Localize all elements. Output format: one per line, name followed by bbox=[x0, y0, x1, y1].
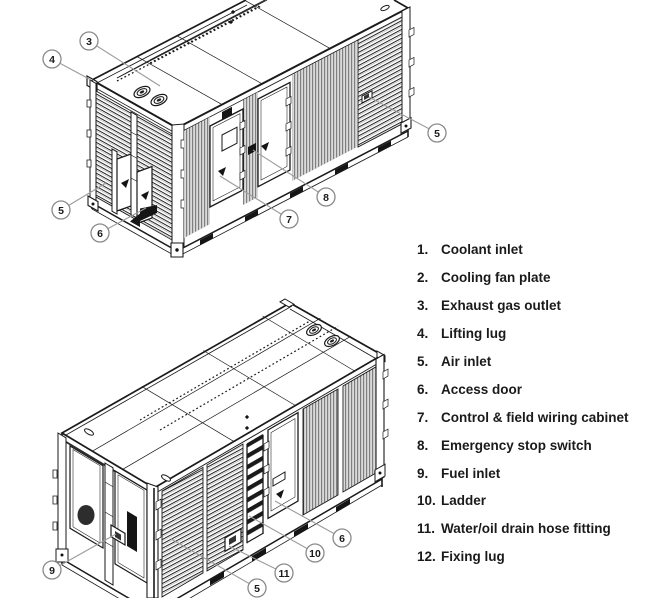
legend-item: 2. Cooling fan plate bbox=[417, 270, 667, 298]
callout-number: 10 bbox=[309, 548, 321, 560]
legend-label: Ladder bbox=[441, 493, 667, 509]
generator-container-bottom-view: 9 5 11 10 6 bbox=[43, 299, 388, 598]
legend-number: 8. bbox=[417, 438, 441, 454]
door-center-channel bbox=[105, 463, 113, 585]
callout-number: 8 bbox=[323, 192, 329, 204]
callout-number: 4 bbox=[49, 54, 55, 66]
legend-label: Water/oil drain hose fitting bbox=[441, 521, 667, 537]
legend-item: 11. Water/oil drain hose fitting bbox=[417, 521, 667, 549]
callout-balloon: 10 bbox=[306, 544, 324, 562]
legend-number: 11. bbox=[417, 521, 441, 537]
wall-corrugation bbox=[303, 389, 338, 515]
legend-item: 4. Lifting lug bbox=[417, 326, 667, 354]
callout-balloon: 11 bbox=[275, 564, 293, 582]
callout-balloon: 4 bbox=[43, 50, 61, 68]
generator-container-top-view: 3 4 5 6 7 8 5 bbox=[43, 0, 446, 257]
legend-label: Control & field wiring cabinet bbox=[441, 410, 667, 426]
callout-balloon: 5 bbox=[52, 201, 70, 219]
corner-post bbox=[402, 7, 410, 131]
legend-label: Emergency stop switch bbox=[441, 438, 667, 454]
parts-legend: 1. Coolant inlet 2. Cooling fan plate 3.… bbox=[417, 242, 667, 577]
legend-item: 3. Exhaust gas outlet bbox=[417, 298, 667, 326]
callout-number: 5 bbox=[58, 205, 64, 217]
callout-balloon: 7 bbox=[280, 210, 298, 228]
corner-fitting bbox=[280, 299, 294, 307]
legend-label: Cooling fan plate bbox=[441, 270, 667, 286]
callout-number: 3 bbox=[86, 36, 92, 48]
legend-label: Lifting lug bbox=[441, 326, 667, 342]
ladder bbox=[247, 435, 263, 544]
callout-balloon: 8 bbox=[317, 188, 335, 206]
legend-item: 1. Coolant inlet bbox=[417, 242, 667, 270]
legend-number: 12. bbox=[417, 549, 441, 565]
callout-number: 6 bbox=[339, 533, 345, 545]
control-cabinet-door bbox=[210, 109, 245, 207]
legend-label: Exhaust gas outlet bbox=[441, 298, 667, 314]
legend-label: Coolant inlet bbox=[441, 242, 667, 258]
legend-item: 7. Control & field wiring cabinet bbox=[417, 410, 667, 438]
legend-number: 5. bbox=[417, 354, 441, 370]
callout-balloon: 6 bbox=[333, 529, 351, 547]
legend-number: 9. bbox=[417, 466, 441, 482]
callout-number: 9 bbox=[49, 565, 55, 577]
callout-number: 5 bbox=[254, 583, 260, 595]
wall-corrugation bbox=[343, 367, 376, 492]
louver-slot bbox=[127, 511, 137, 552]
legend-item: 9. Fuel inlet bbox=[417, 466, 667, 494]
callout-balloon: 5 bbox=[428, 124, 446, 142]
corner-post bbox=[147, 483, 158, 598]
containerized-generator-diagram-page: 3 4 5 6 7 8 5 bbox=[0, 0, 672, 598]
corner-post bbox=[58, 433, 66, 560]
legend-label: Fixing lug bbox=[441, 549, 667, 565]
legend-item: 10. Ladder bbox=[417, 493, 667, 521]
callout-number: 5 bbox=[434, 128, 440, 140]
callout-number: 11 bbox=[278, 568, 289, 580]
callout-number: 6 bbox=[97, 228, 103, 240]
legend-number: 3. bbox=[417, 298, 441, 314]
legend-item: 8. Emergency stop switch bbox=[417, 438, 667, 466]
legend-number: 1. bbox=[417, 242, 441, 258]
legend-number: 2. bbox=[417, 270, 441, 286]
callout-balloon: 9 bbox=[43, 561, 61, 579]
air-inlet-louver bbox=[358, 17, 402, 147]
callout-balloon: 5 bbox=[248, 579, 266, 597]
corner-post bbox=[90, 80, 96, 203]
legend-item: 12. Fixing lug bbox=[417, 549, 667, 577]
wall-corrugation bbox=[184, 117, 210, 238]
fan-hole bbox=[78, 505, 95, 525]
callout-balloon: 3 bbox=[80, 32, 98, 50]
legend-number: 7. bbox=[417, 410, 441, 426]
callout-number: 7 bbox=[286, 214, 292, 226]
legend-label: Air inlet bbox=[441, 354, 667, 370]
legend-item: 6. Access door bbox=[417, 382, 667, 410]
callout-balloon: 6 bbox=[91, 224, 109, 242]
legend-label: Fuel inlet bbox=[441, 466, 667, 482]
legend-item: 5. Air inlet bbox=[417, 354, 667, 382]
legend-label: Access door bbox=[441, 382, 667, 398]
legend-number: 10. bbox=[417, 493, 441, 509]
legend-number: 6. bbox=[417, 382, 441, 398]
legend-number: 4. bbox=[417, 326, 441, 342]
